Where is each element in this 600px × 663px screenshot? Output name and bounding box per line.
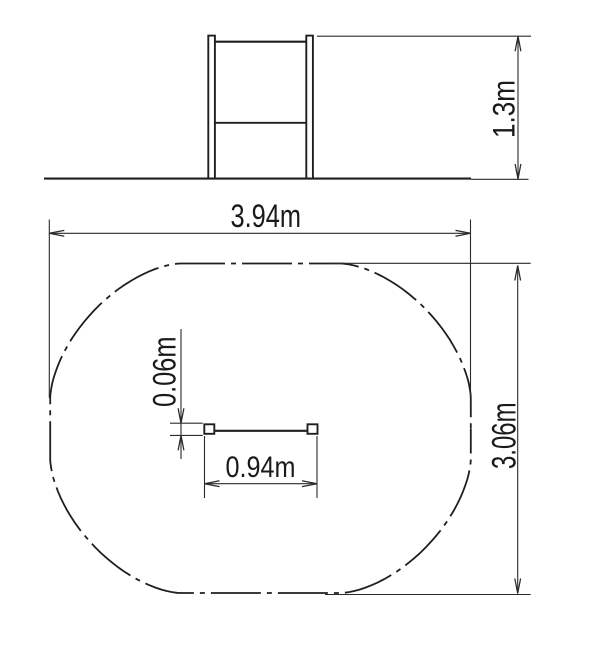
svg-text:0.06m: 0.06m [147, 337, 183, 408]
svg-text:3.94m: 3.94m [231, 198, 302, 234]
svg-text:1.3m: 1.3m [486, 80, 522, 138]
svg-text:0.94m: 0.94m [226, 451, 296, 484]
svg-text:3.06m: 3.06m [486, 403, 524, 470]
